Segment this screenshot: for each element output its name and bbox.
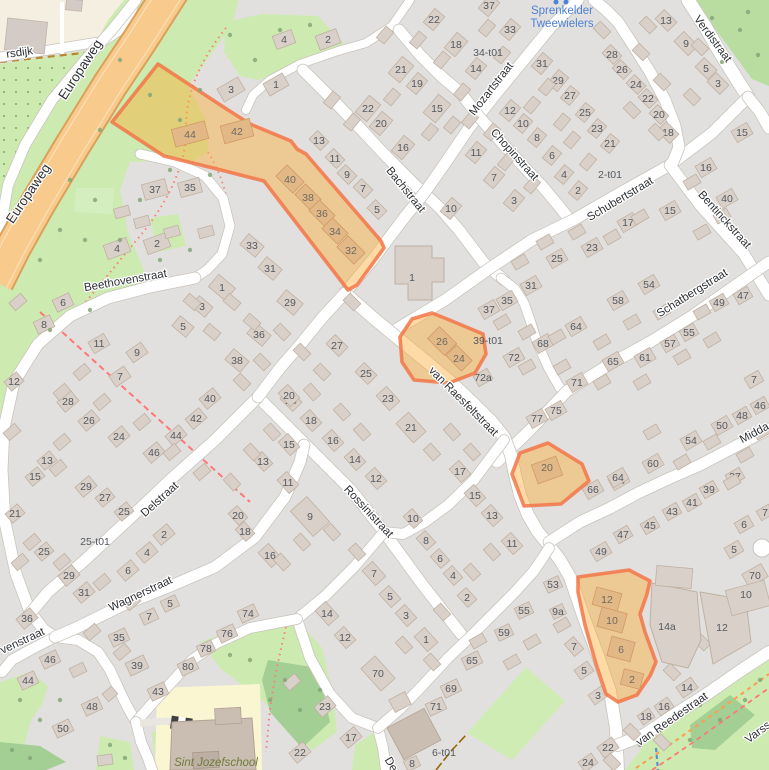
svg-text:32: 32 [345, 245, 357, 257]
svg-text:28: 28 [606, 49, 618, 61]
svg-text:6: 6 [741, 519, 747, 531]
svg-text:60: 60 [647, 458, 659, 470]
svg-text:40: 40 [721, 193, 733, 205]
svg-text:7: 7 [751, 374, 757, 386]
svg-text:10: 10 [407, 513, 419, 525]
svg-text:71: 71 [430, 701, 442, 713]
svg-text:2: 2 [161, 529, 167, 541]
svg-text:25: 25 [551, 253, 563, 265]
svg-text:17: 17 [345, 732, 357, 744]
svg-text:12: 12 [8, 376, 20, 388]
svg-text:7: 7 [371, 568, 377, 580]
svg-text:50: 50 [57, 723, 69, 735]
svg-text:43: 43 [666, 506, 678, 518]
svg-text:80: 80 [182, 661, 194, 673]
svg-text:78: 78 [200, 643, 212, 655]
svg-text:39: 39 [703, 484, 715, 496]
svg-text:8: 8 [41, 319, 47, 331]
svg-text:7: 7 [571, 641, 577, 653]
svg-text:25: 25 [579, 107, 591, 119]
svg-text:15: 15 [736, 127, 748, 139]
svg-text:46: 46 [754, 400, 766, 412]
svg-text:18: 18 [239, 526, 251, 538]
svg-text:5: 5 [703, 63, 709, 75]
svg-text:8: 8 [409, 758, 415, 770]
svg-text:24: 24 [113, 431, 125, 443]
svg-text:7: 7 [491, 172, 497, 184]
svg-text:38: 38 [302, 192, 314, 204]
svg-text:3: 3 [511, 195, 517, 207]
svg-text:31: 31 [525, 280, 537, 292]
svg-text:21: 21 [604, 138, 616, 150]
svg-text:10: 10 [606, 615, 618, 627]
svg-text:26: 26 [616, 64, 628, 76]
svg-text:55: 55 [518, 605, 530, 617]
svg-text:5: 5 [581, 665, 587, 677]
svg-text:Sprenkelder: Sprenkelder [531, 5, 593, 17]
svg-text:7: 7 [117, 371, 123, 383]
svg-text:11: 11 [283, 477, 294, 489]
svg-text:53: 53 [547, 579, 559, 591]
svg-text:9: 9 [134, 347, 140, 359]
svg-text:66: 66 [587, 484, 599, 496]
svg-text:13: 13 [313, 135, 325, 147]
svg-text:9: 9 [344, 169, 350, 181]
svg-text:18: 18 [450, 39, 462, 51]
svg-text:48: 48 [736, 410, 748, 422]
svg-text:35: 35 [113, 632, 125, 644]
svg-text:50: 50 [716, 420, 728, 432]
svg-text:27: 27 [564, 90, 576, 102]
svg-text:4: 4 [281, 34, 287, 46]
svg-text:Sint Jozefschool: Sint Jozefschool [174, 757, 258, 769]
svg-text:Tweewielers: Tweewielers [530, 18, 594, 30]
svg-text:37: 37 [483, 304, 495, 316]
svg-text:20: 20 [653, 109, 665, 121]
svg-text:11: 11 [94, 338, 105, 350]
svg-text:23: 23 [319, 701, 331, 713]
svg-text:12: 12 [504, 105, 516, 117]
svg-text:39-t01: 39-t01 [473, 335, 503, 347]
svg-text:7: 7 [360, 183, 366, 195]
svg-text:6: 6 [60, 297, 66, 309]
svg-text:3: 3 [403, 610, 409, 622]
svg-text:8: 8 [534, 132, 540, 144]
svg-text:26: 26 [83, 415, 95, 427]
svg-text:76: 76 [221, 628, 233, 640]
svg-text:16: 16 [658, 701, 670, 713]
svg-text:11: 11 [471, 147, 482, 159]
svg-text:7: 7 [762, 507, 768, 519]
svg-text:16: 16 [700, 162, 712, 174]
svg-text:22: 22 [294, 747, 306, 759]
svg-text:3: 3 [228, 84, 234, 96]
svg-text:2: 2 [629, 674, 635, 686]
svg-text:39: 39 [131, 660, 143, 672]
svg-text:11: 11 [330, 153, 341, 165]
svg-text:1: 1 [423, 634, 429, 646]
svg-text:6: 6 [618, 644, 624, 656]
svg-text:46: 46 [44, 654, 56, 666]
svg-text:47: 47 [737, 290, 749, 302]
svg-text:16: 16 [327, 435, 339, 447]
svg-text:37: 37 [149, 184, 161, 196]
svg-text:54: 54 [643, 279, 655, 291]
svg-text:70: 70 [749, 570, 761, 582]
svg-text:11: 11 [507, 538, 518, 550]
svg-text:6: 6 [549, 150, 555, 162]
svg-text:37: 37 [483, 0, 495, 12]
svg-text:2: 2 [325, 34, 331, 46]
svg-text:5: 5 [180, 321, 186, 333]
svg-text:48: 48 [86, 701, 98, 713]
svg-text:5: 5 [374, 204, 380, 216]
svg-text:29: 29 [284, 297, 296, 309]
svg-text:41: 41 [686, 497, 698, 509]
svg-text:65: 65 [607, 356, 619, 368]
svg-text:36: 36 [316, 208, 328, 220]
svg-text:44: 44 [170, 430, 182, 442]
svg-text:35: 35 [501, 295, 513, 307]
svg-text:31: 31 [78, 587, 90, 599]
svg-text:5: 5 [167, 598, 173, 610]
svg-text:15: 15 [664, 205, 676, 217]
svg-text:35: 35 [184, 182, 196, 194]
svg-text:34: 34 [329, 226, 341, 238]
svg-text:57: 57 [664, 338, 676, 350]
svg-text:33: 33 [246, 240, 258, 252]
svg-text:21: 21 [395, 64, 407, 76]
svg-text:4: 4 [561, 169, 567, 181]
svg-text:25-t01: 25-t01 [80, 536, 110, 548]
svg-text:14a: 14a [658, 621, 676, 633]
svg-text:15: 15 [431, 103, 443, 115]
svg-text:36: 36 [21, 613, 33, 625]
svg-text:22: 22 [642, 93, 654, 105]
svg-text:18: 18 [640, 711, 652, 723]
svg-text:9a: 9a [552, 606, 564, 618]
svg-text:47: 47 [617, 529, 629, 541]
svg-text:44: 44 [22, 675, 34, 687]
svg-text:13: 13 [257, 456, 269, 468]
svg-text:42: 42 [190, 413, 202, 425]
svg-text:1: 1 [409, 272, 415, 284]
svg-text:22: 22 [602, 742, 614, 754]
svg-text:6: 6 [437, 553, 443, 565]
svg-text:27: 27 [99, 492, 111, 504]
svg-text:21: 21 [9, 508, 21, 520]
svg-text:25: 25 [38, 546, 50, 558]
svg-text:5: 5 [387, 591, 393, 603]
svg-text:75: 75 [550, 405, 562, 417]
svg-text:64: 64 [612, 472, 624, 484]
svg-text:2: 2 [154, 238, 160, 250]
svg-text:27: 27 [331, 340, 343, 352]
svg-text:68: 68 [537, 338, 549, 350]
svg-text:49: 49 [713, 297, 725, 309]
svg-text:25: 25 [360, 368, 372, 380]
svg-text:24: 24 [453, 353, 465, 365]
svg-text:16: 16 [397, 142, 409, 154]
svg-text:1: 1 [219, 282, 225, 294]
svg-text:6: 6 [125, 565, 131, 577]
svg-text:10: 10 [740, 589, 752, 601]
svg-text:22: 22 [428, 14, 440, 26]
svg-text:72a: 72a [474, 372, 492, 384]
svg-text:33: 33 [504, 24, 516, 36]
svg-text:7: 7 [146, 611, 152, 623]
svg-text:8: 8 [423, 535, 429, 547]
svg-text:12: 12 [601, 594, 613, 606]
svg-text:12: 12 [370, 473, 382, 485]
svg-text:14: 14 [321, 608, 333, 620]
svg-text:20: 20 [232, 510, 244, 522]
svg-text:14: 14 [349, 454, 361, 466]
svg-text:2-t01: 2-t01 [598, 169, 622, 181]
svg-text:17: 17 [454, 466, 466, 478]
svg-text:14: 14 [681, 682, 693, 694]
svg-text:72: 72 [508, 352, 520, 364]
svg-text:2: 2 [575, 185, 581, 197]
svg-text:61: 61 [639, 352, 651, 364]
svg-text:12: 12 [716, 622, 728, 634]
svg-text:25: 25 [118, 506, 130, 518]
svg-text:24: 24 [630, 79, 642, 91]
svg-text:70: 70 [372, 668, 384, 680]
svg-text:10: 10 [517, 118, 529, 130]
svg-text:23: 23 [591, 123, 603, 135]
svg-text:69: 69 [445, 683, 457, 695]
svg-text:65: 65 [466, 655, 478, 667]
svg-text:71: 71 [571, 377, 583, 389]
svg-text:34-t01: 34-t01 [473, 47, 503, 59]
svg-text:58: 58 [612, 295, 624, 307]
svg-text:20: 20 [375, 118, 387, 130]
svg-text:24: 24 [582, 757, 594, 769]
svg-text:55: 55 [683, 327, 695, 339]
svg-text:9: 9 [683, 38, 689, 50]
svg-text:20: 20 [541, 462, 553, 474]
svg-text:45: 45 [644, 520, 656, 532]
svg-text:4: 4 [144, 547, 150, 559]
svg-text:3: 3 [595, 690, 601, 702]
svg-text:40: 40 [284, 174, 296, 186]
svg-text:9: 9 [307, 511, 313, 523]
svg-text:15: 15 [29, 471, 41, 483]
svg-text:43: 43 [152, 686, 164, 698]
svg-text:23: 23 [586, 242, 598, 254]
svg-text:23: 23 [382, 393, 394, 405]
svg-text:15: 15 [283, 439, 295, 451]
svg-text:77: 77 [531, 413, 543, 425]
svg-text:4: 4 [450, 570, 456, 582]
svg-text:6-t01: 6-t01 [432, 747, 456, 759]
svg-text:22: 22 [362, 103, 374, 115]
svg-text:13: 13 [486, 510, 498, 522]
svg-text:46: 46 [148, 447, 160, 459]
svg-text:64: 64 [570, 321, 582, 333]
svg-text:20: 20 [283, 390, 295, 402]
svg-text:42: 42 [231, 126, 243, 138]
svg-text:29: 29 [63, 570, 75, 582]
svg-text:1: 1 [273, 79, 279, 91]
svg-text:28: 28 [62, 396, 74, 408]
svg-text:14: 14 [470, 63, 482, 75]
svg-text:54: 54 [685, 435, 697, 447]
svg-text:18: 18 [305, 415, 317, 427]
svg-text:21: 21 [405, 422, 417, 434]
svg-text:3: 3 [715, 78, 721, 90]
svg-text:38: 38 [231, 355, 243, 367]
svg-text:2: 2 [464, 592, 470, 604]
svg-text:5: 5 [731, 544, 737, 556]
svg-text:4: 4 [114, 243, 120, 255]
svg-text:40: 40 [204, 393, 216, 405]
svg-text:19: 19 [411, 78, 423, 90]
svg-text:59: 59 [498, 627, 510, 639]
svg-text:31: 31 [536, 58, 548, 70]
svg-text:44: 44 [184, 129, 196, 141]
svg-text:29: 29 [80, 481, 92, 493]
svg-text:13: 13 [660, 15, 672, 27]
svg-text:26: 26 [436, 336, 448, 348]
svg-text:10: 10 [445, 203, 457, 215]
svg-text:74: 74 [242, 608, 254, 620]
svg-text:15: 15 [469, 490, 481, 502]
svg-text:12: 12 [339, 632, 351, 644]
svg-text:49: 49 [595, 546, 607, 558]
svg-text:36: 36 [253, 329, 265, 341]
svg-text:31: 31 [264, 263, 276, 275]
svg-text:13: 13 [41, 455, 53, 467]
